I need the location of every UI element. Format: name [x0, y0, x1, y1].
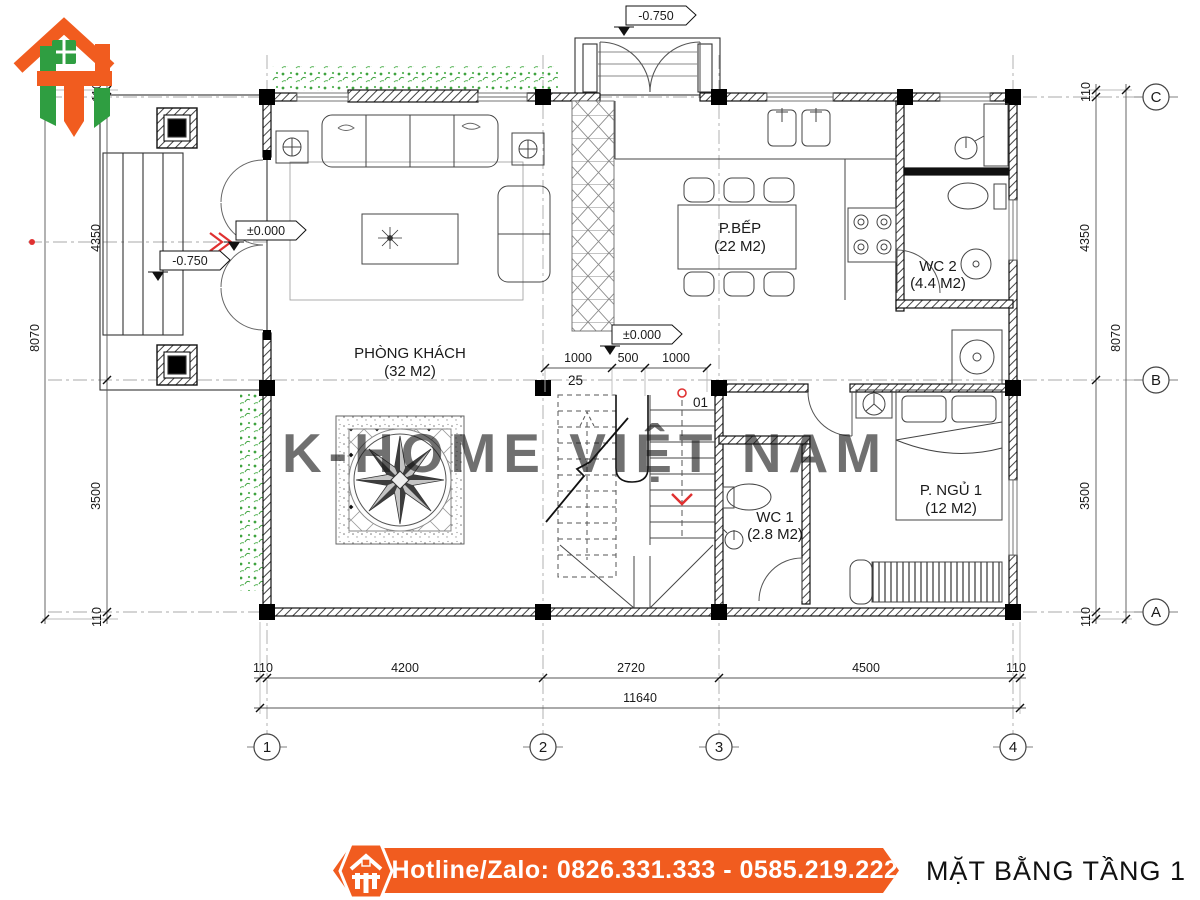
dim-stair-1000-left: 1000: [564, 351, 592, 365]
dim-stair-1000-right: 1000: [662, 351, 690, 365]
elevation-entry-top: -0.750: [638, 9, 673, 23]
grid-row-a: A: [1151, 604, 1161, 621]
hotline-text: Hotline/Zalo: 0826.331.333 - 0585.219.22…: [334, 856, 899, 885]
dim-left-3500: 3500: [89, 482, 103, 510]
grid-row-b: B: [1151, 372, 1161, 389]
room-area-wc2: (4.4 M2): [910, 275, 966, 292]
entry-porch: [575, 38, 720, 95]
room-label-kitchen: P.BẾP: [719, 220, 761, 237]
dim-left-4350: 4350: [89, 224, 103, 252]
plant-decor: [378, 227, 402, 249]
room-area-wc1: (2.8 M2): [747, 526, 803, 543]
room-label-living: PHÒNG KHÁCH: [354, 345, 466, 362]
nightstand: [856, 390, 892, 418]
washing-machine: [952, 330, 1002, 384]
dim-right-total: 8070: [1109, 324, 1123, 352]
grid-col-3: 3: [715, 739, 723, 756]
stair-path-start: [678, 389, 686, 397]
floor-plan-page: 110 4350 3500 110 8070 110 4350 3500 110…: [0, 0, 1200, 900]
room-label-wc1: WC 1: [756, 509, 794, 526]
stove: [848, 208, 896, 262]
dim-left-110-bot: 110: [90, 607, 104, 627]
stair-number-upper: 25: [568, 373, 583, 388]
elevation-porch-left: -0.750: [172, 254, 207, 268]
elevation-porch-zero: ±0.000: [247, 224, 285, 238]
stair-number-lower: 01: [693, 395, 708, 410]
dim-right-4350: 4350: [1078, 224, 1092, 252]
porch-column-top: [157, 108, 197, 148]
dim-bottom-4500: 4500: [852, 661, 880, 675]
room-area-bedroom1: (12 M2): [925, 500, 977, 517]
drawing-title: MẶT BẰNG TẦNG 1: [926, 856, 1186, 887]
dim-right-110-top: 110: [1079, 82, 1093, 102]
watermark: K-HOME VIỆT NAM: [282, 422, 888, 484]
dim-bottom-2720: 2720: [617, 661, 645, 675]
dim-right-110-bot: 110: [1079, 607, 1093, 627]
kitchen-sink: [768, 108, 830, 146]
elevation-stair-zero: ±0.000: [623, 328, 661, 342]
dim-bottom-110-left: 110: [253, 661, 273, 675]
hotline-banner: Hotline/Zalo: 0826.331.333 - 0585.219.22…: [333, 848, 899, 893]
floor-plan-drawing: 110 4350 3500 110 8070 110 4350 3500 110…: [0, 0, 1200, 820]
coffee-table: [362, 214, 458, 264]
dim-bottom-110-right: 110: [1006, 661, 1026, 675]
dining-table: [678, 178, 796, 296]
grid-row-c: C: [1151, 89, 1162, 106]
room-area-living: (32 M2): [384, 363, 436, 380]
axis-red-dot: [29, 239, 35, 245]
porch-column-bottom: [157, 345, 197, 385]
dim-bottom-total: 11640: [623, 691, 657, 705]
grid-col-4: 4: [1009, 739, 1017, 756]
dim-right-3500: 3500: [1078, 482, 1092, 510]
dim-left-total: 8070: [28, 324, 42, 352]
khome-logo-icon: [12, 6, 117, 141]
trellis-divider: [572, 101, 614, 331]
hotline-house-icon: [337, 841, 395, 900]
room-label-bedroom1: P. NGỦ 1: [920, 481, 982, 499]
room-label-wc2: WC 2: [919, 258, 957, 275]
entry-double-door: [600, 42, 700, 92]
grid-col-1: 1: [263, 739, 271, 756]
living-room-furniture: [276, 115, 550, 300]
dim-bottom-4200: 4200: [391, 661, 419, 675]
room-area-kitchen: (22 M2): [714, 238, 766, 255]
wardrobe: [850, 560, 1002, 604]
dim-stair-500: 500: [618, 351, 639, 365]
grid-col-2: 2: [539, 739, 547, 756]
